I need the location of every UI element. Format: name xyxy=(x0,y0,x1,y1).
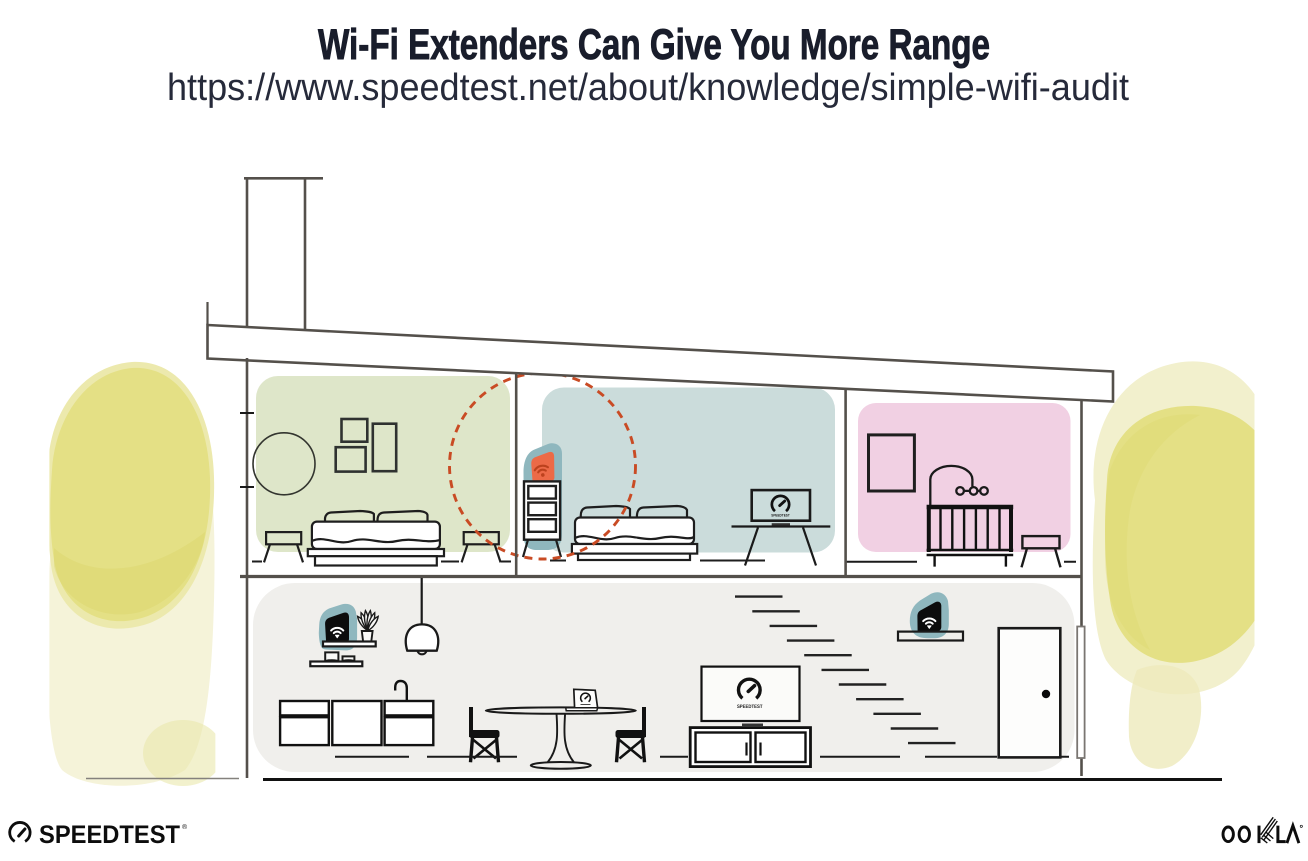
svg-text:SPEEDTEST: SPEEDTEST xyxy=(771,514,790,518)
svg-text:SPEEDTEST: SPEEDTEST xyxy=(737,704,763,710)
svg-text:Wi-Fi Extenders Can Give You M: Wi-Fi Extenders Can Give You More Range xyxy=(318,21,990,69)
svg-text:®: ® xyxy=(182,824,188,831)
svg-text:https://www.speedtest.net/abou: https://www.speedtest.net/about/knowledg… xyxy=(167,67,1129,109)
svg-text:SPEEDTEST: SPEEDTEST xyxy=(39,821,180,849)
